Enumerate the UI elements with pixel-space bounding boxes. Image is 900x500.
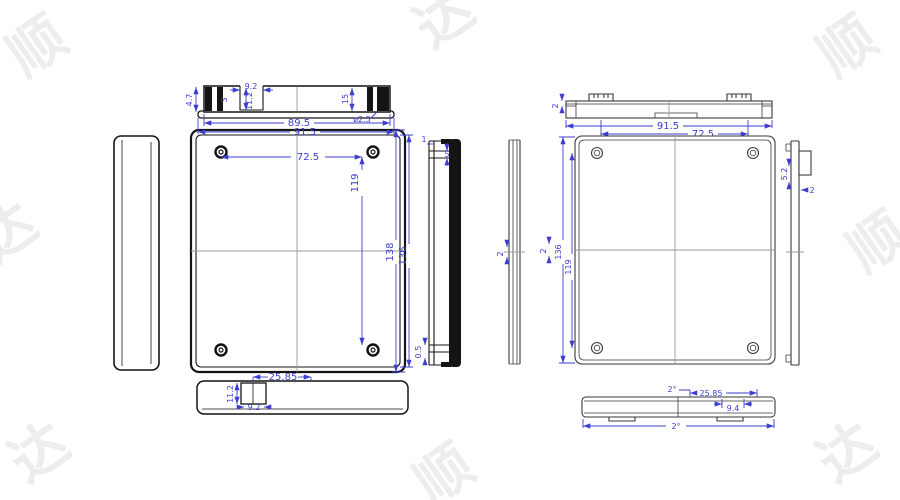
dim-label-height-4-7: 4.7 [185, 94, 194, 107]
screw-hole [368, 345, 379, 356]
clip-tab [799, 151, 811, 175]
view-cover-plan: 2 136 119 [539, 136, 775, 364]
wall-section [441, 362, 451, 367]
outline [114, 136, 159, 370]
screw-hole [216, 147, 227, 158]
dim-label-height-outer: 138 [385, 242, 396, 261]
watermark-glyph: 达 [0, 410, 81, 495]
dim-label-width-91-5: 91.5 [294, 127, 316, 138]
dim-label-width-91-5: 91.5 [657, 121, 679, 132]
rib-section [205, 87, 212, 111]
screw-hole-bore [219, 348, 223, 352]
watermark-glyph: 顺 [806, 4, 889, 89]
dim-label-height-136: 136 [554, 244, 563, 259]
outline [582, 397, 775, 417]
dim-label-depth-11-2: 11.2 [226, 385, 235, 403]
dim-label-wall-2: 2 [551, 103, 560, 108]
view-cover-right-side: 5.2 2 [780, 141, 815, 365]
dim-label-wall-2: 2 [539, 248, 548, 253]
clip-tab [727, 94, 751, 101]
screw-hole [216, 345, 227, 356]
view-cover-top-profile: 2 91.5 72.5 [551, 94, 772, 140]
dim-label-wall-2: 2 [809, 186, 814, 195]
wall-section [441, 139, 451, 144]
screw-hole [368, 147, 379, 158]
watermark-glyph: 顺 [0, 4, 79, 89]
dim-label-draft-bottom: 2° [671, 422, 680, 431]
dim-label-tab-5-2: 5.2 [780, 168, 789, 181]
view-base-plan: 72.5 119 138 136 [191, 130, 413, 372]
dim-label-hole-span-y: 119 [350, 173, 361, 192]
dim-label-width-9-4: 9.4 [727, 404, 740, 413]
wall-section [449, 139, 461, 367]
view-base-section: 1 5 0.5 [414, 135, 461, 367]
outline [791, 141, 799, 365]
dim-label-offset-25-85: 25.85 [700, 389, 723, 398]
view-base-bottom: 25.85 11.2 9.2 [197, 372, 408, 414]
dim-label-height-15: 15 [341, 94, 350, 104]
screw-hole-bore [219, 150, 223, 154]
view-base-left-side [114, 136, 159, 370]
watermark-glyph: 达 [806, 410, 889, 495]
dim-label-hole-span-y: 119 [564, 259, 573, 274]
screw-hole-bore [371, 150, 375, 154]
dim-label-lip-1: 1 [421, 135, 426, 144]
view-cover-section: 2 [496, 140, 525, 364]
rib-section [377, 87, 389, 111]
clip-tab [589, 94, 613, 101]
dim-label-width-9-2: 9.2 [245, 82, 258, 91]
dim-label-height-inner: 136 [398, 246, 409, 265]
dim-label-width-9-2: 9.2 [248, 403, 261, 412]
watermark-glyph: 达 [0, 190, 49, 275]
dim-label-gap-3: 3 [220, 97, 229, 102]
dim-label-draft-top: 2° [667, 385, 676, 394]
watermark-glyph: 顺 [836, 200, 900, 285]
view-cover-bottom: 2° 25.85 9.4 2° [582, 385, 775, 431]
rib-section [367, 87, 373, 111]
cad-drawing-canvas: 顺 达 顺 达 顺 达 顺 达 [0, 0, 900, 500]
dim-label-wall-2: 2 [496, 251, 505, 256]
dim-label-gap-5: 5 [444, 150, 449, 159]
notch-outline [241, 383, 266, 404]
section-lines [429, 141, 450, 365]
dim-label-offset-25-85: 25.85 [269, 372, 298, 383]
clip-feet [609, 417, 743, 421]
screw-hole-bore [371, 348, 375, 352]
watermark-glyph: 达 [403, 0, 486, 62]
watermark-glyph: 顺 [403, 432, 486, 500]
dim-label-hole-span-x: 72.5 [297, 152, 319, 163]
dim-label-depth-11-2: 11.2 [245, 92, 254, 110]
dim-label-gap-0-5: 0.5 [414, 346, 423, 359]
